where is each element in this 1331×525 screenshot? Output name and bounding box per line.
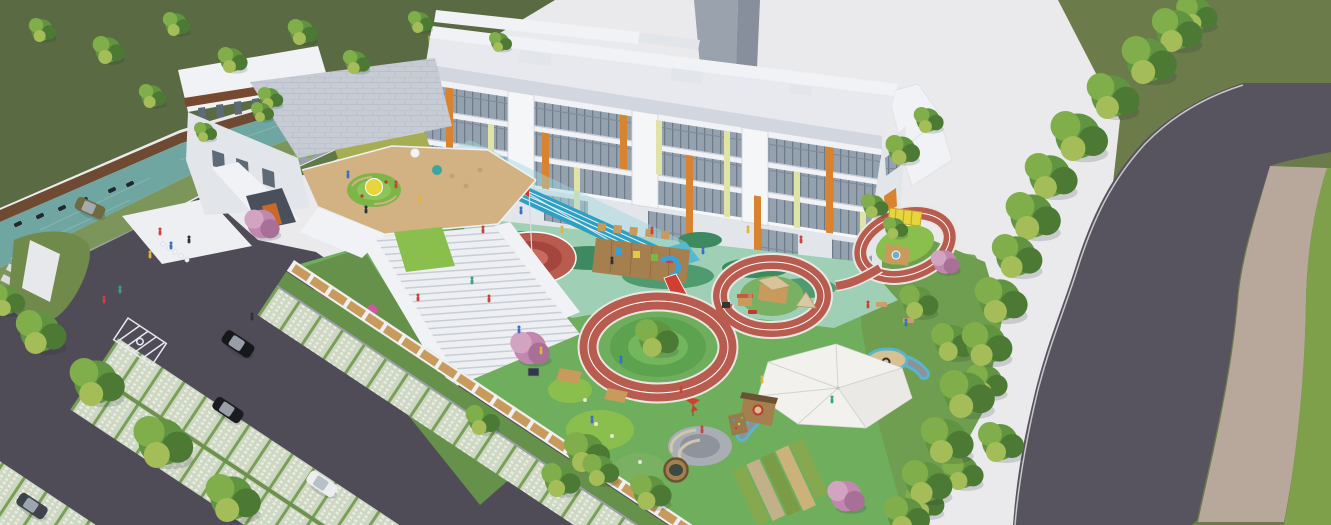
chimney-tower-shade bbox=[736, 0, 760, 68]
market-stall bbox=[737, 294, 753, 306]
round-pond bbox=[665, 459, 688, 482]
white-parasol bbox=[411, 149, 420, 158]
teal-parasol bbox=[432, 165, 442, 175]
chimney-tower bbox=[694, 0, 738, 67]
rendering-viewport bbox=[0, 0, 1331, 525]
activity-panel bbox=[528, 368, 539, 376]
blackboard-easel bbox=[722, 302, 730, 308]
yellow-canopy bbox=[366, 179, 383, 196]
aerial-rendering bbox=[0, 0, 1331, 525]
